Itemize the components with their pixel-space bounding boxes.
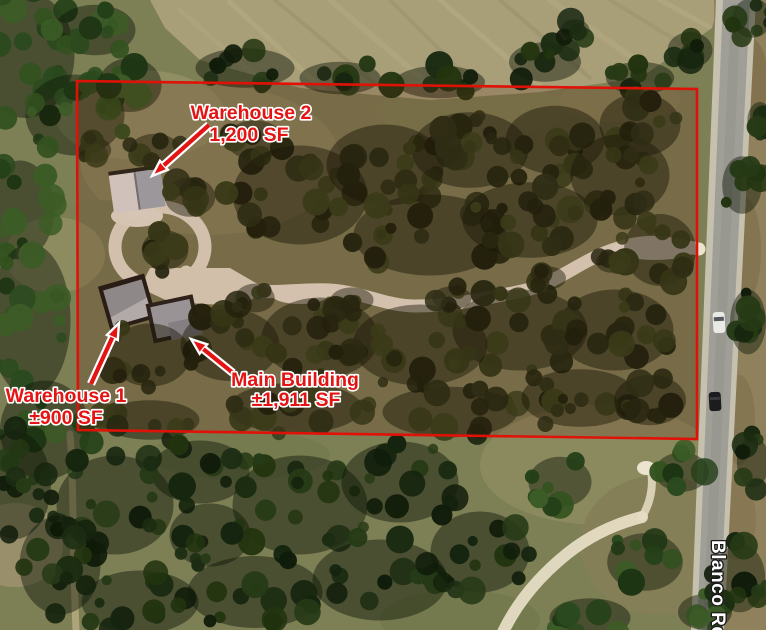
main-building-label: Main Building [231, 369, 359, 391]
satellite-basemap: Warehouse 2 1,200 SF Warehouse 1 ±900 SF… [0, 0, 766, 630]
warehouse-1-label: Warehouse 1 [6, 385, 127, 407]
vehicle-white-car [712, 312, 725, 334]
warehouse-1-size: ±900 SF [29, 407, 103, 429]
warehouse-2-label: Warehouse 2 [191, 102, 312, 124]
warehouse-2-size: 1,200 SF [209, 124, 288, 146]
main-building-size: ±1,911 SF [252, 389, 341, 411]
property-boundary [77, 81, 697, 439]
aerial-property-map: Warehouse 2 1,200 SF Warehouse 1 ±900 SF… [0, 0, 766, 630]
road-name-label: Blanco Rd [707, 540, 728, 630]
vehicle-dark-car [709, 392, 722, 412]
